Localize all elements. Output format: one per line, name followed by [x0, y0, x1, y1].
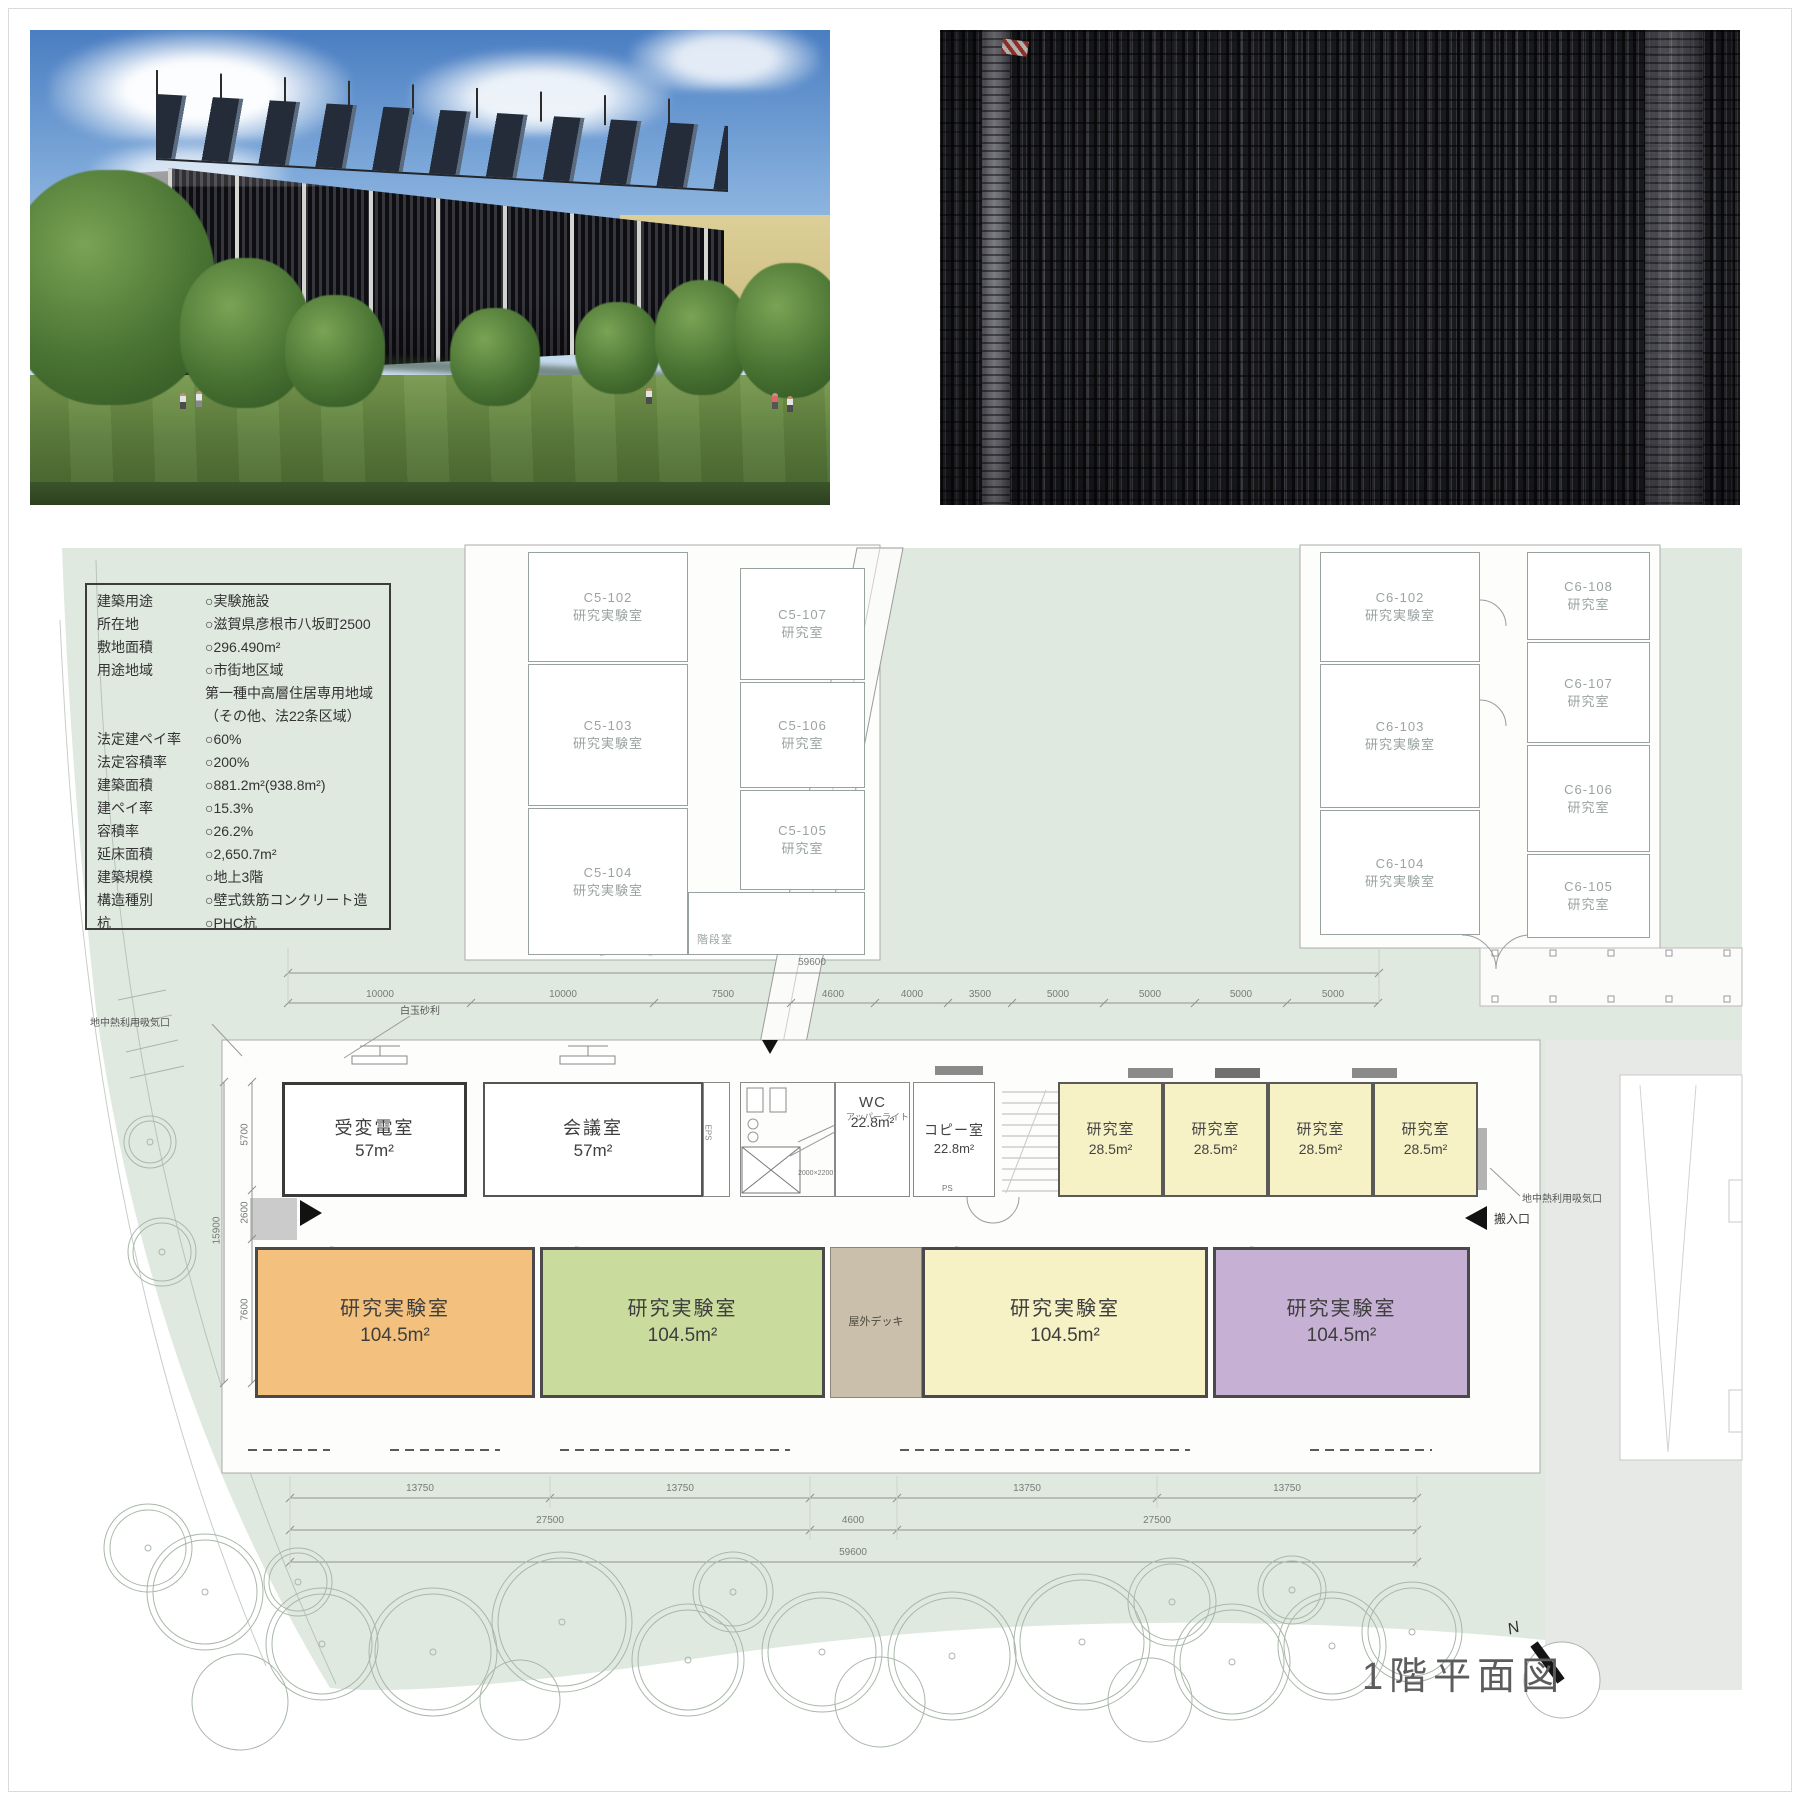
room-c6-105: C6-105研究室 [1527, 854, 1650, 938]
dim-bottom-13750-2: 13750 [666, 1483, 694, 1494]
table-row: 建築面積○881.2m²(938.8m²) [97, 775, 326, 795]
dim-bottom-13750-1: 13750 [406, 1483, 434, 1494]
table-row: （その他、法22条区域） [97, 706, 361, 726]
dim-top-segment-9: 5000 [1322, 989, 1344, 1000]
room-c6-106: C6-106研究室 [1527, 745, 1650, 852]
dim-top-segment-2: 7500 [712, 989, 734, 1000]
room-lab-large-yellow: 研究実験室104.5m² [922, 1247, 1208, 1398]
label-carry-in: 搬入口 [1494, 1210, 1530, 1227]
room-c5-107: C5-107研究室 [740, 568, 865, 680]
room-c6-102: C6-102研究実験室 [1320, 552, 1480, 662]
table-row: 建築用途○実験施設 [97, 591, 269, 611]
room-c6-103: C6-103研究実験室 [1320, 664, 1480, 808]
dim-top-segment-7: 5000 [1139, 989, 1161, 1000]
room-c5-stair: 階段室 [688, 892, 865, 955]
presentation-board: 建築用途○実験施設 所在地○滋賀県彦根市八坂町2500 敷地面積○296.490… [0, 0, 1800, 1800]
table-row: 建築規模○地上3階 [97, 867, 263, 887]
table-row: 法定建ペイ率○60% [97, 729, 241, 749]
label-geothermal-east: 地中熱利用吸気口 [1522, 1190, 1602, 1205]
table-row: 敷地面積○296.490m² [97, 637, 280, 657]
dim-bottom-27500-2: 27500 [1143, 1515, 1171, 1526]
dim-left-7600: 7600 [240, 1288, 251, 1332]
wc-service-block [740, 1082, 835, 1197]
room-lab-large-green: 研究実験室104.5m² [540, 1247, 825, 1398]
project-data-table: 建築用途○実験施設 所在地○滋賀県彦根市八坂町2500 敷地面積○296.490… [85, 583, 391, 930]
label-elevator-size: 2000×2200 [798, 1170, 833, 1177]
dim-left-2600: 2600 [240, 1191, 251, 1235]
room-c6-107: C6-107研究室 [1527, 642, 1650, 743]
west-entry-vestibule [250, 1198, 297, 1240]
label-upper-light: アッパーライト [846, 1110, 909, 1123]
room-wc: WC22.8m² [835, 1082, 910, 1197]
table-row: 杭○PHC杭 [97, 913, 257, 933]
table-row: 第一種中高層住居専用地域 [97, 683, 373, 703]
dim-top-segment-6: 5000 [1047, 989, 1069, 1000]
room-c5-102: C5-102研究実験室 [528, 552, 688, 662]
dim-bottom-13750-3: 13750 [1013, 1483, 1041, 1494]
dim-top-segment-4: 4000 [901, 989, 923, 1000]
table-row: 法定容積率○200% [97, 752, 249, 772]
dim-top-segment-8: 5000 [1230, 989, 1252, 1000]
table-row: 所在地○滋賀県彦根市八坂町2500 [97, 614, 371, 634]
dim-bottom-4600: 4600 [842, 1515, 864, 1526]
room-c6-104: C6-104研究実験室 [1320, 810, 1480, 935]
dim-bottom-13750-4: 13750 [1273, 1483, 1301, 1494]
dim-top-segment-3: 4600 [822, 989, 844, 1000]
label-geothermal-west: 地中熱利用吸気口 [90, 1014, 170, 1029]
dim-bottom-27500-1: 27500 [536, 1515, 564, 1526]
room-c5-103: C5-103研究実験室 [528, 664, 688, 806]
room-c6-108: C6-108研究室 [1527, 552, 1650, 640]
dim-left-5700: 5700 [240, 1113, 251, 1157]
dim-top-overall: 59600 [798, 957, 826, 968]
outdoor-deck: 屋外デッキ [830, 1247, 922, 1398]
room-substation: 受変電室57m² [282, 1082, 467, 1197]
room-copy: コピー室22.8m² [913, 1082, 995, 1197]
dim-top-segment-1: 10000 [549, 989, 577, 1000]
label-ps: PS [942, 1184, 953, 1193]
room-lab-large-orange: 研究実験室104.5m² [255, 1247, 535, 1398]
room-c5-104: C5-104研究実験室 [528, 808, 688, 955]
room-lab-large-purple: 研究実験室104.5m² [1213, 1247, 1470, 1398]
room-c5-106: C5-106研究室 [740, 682, 865, 788]
label-gravel: 白玉砂利 [400, 1002, 440, 1017]
table-row: 用途地域○市街地区域 [97, 660, 283, 680]
table-row: 延床面積○2,650.7m² [97, 844, 277, 864]
table-row: 容積率○26.2% [97, 821, 253, 841]
table-row: 構造種別○壁式鉄筋コンクリート造 [97, 890, 367, 910]
geothermal-vent-bar [1477, 1128, 1487, 1190]
room-c5-105: C5-105研究室 [740, 790, 865, 890]
room-meeting: 会議室57m² [483, 1082, 703, 1197]
room-lab-small-2: 研究室28.5m² [1163, 1082, 1268, 1197]
dim-top-segment-5: 3500 [969, 989, 991, 1000]
room-lab-small-4: 研究室28.5m² [1373, 1082, 1478, 1197]
room-lab-small-1: 研究室28.5m² [1058, 1082, 1163, 1197]
table-row: 建ペイ率○15.3% [97, 798, 253, 818]
room-lab-small-3: 研究室28.5m² [1268, 1082, 1373, 1197]
dim-left-15900: 15900 [212, 1209, 223, 1253]
dim-bottom-overall: 59600 [839, 1547, 867, 1558]
label-eps: EPS [704, 1124, 713, 1140]
dim-top-segment-0: 10000 [366, 989, 394, 1000]
drawing-title: 1階平面図 [1362, 1645, 1565, 1700]
